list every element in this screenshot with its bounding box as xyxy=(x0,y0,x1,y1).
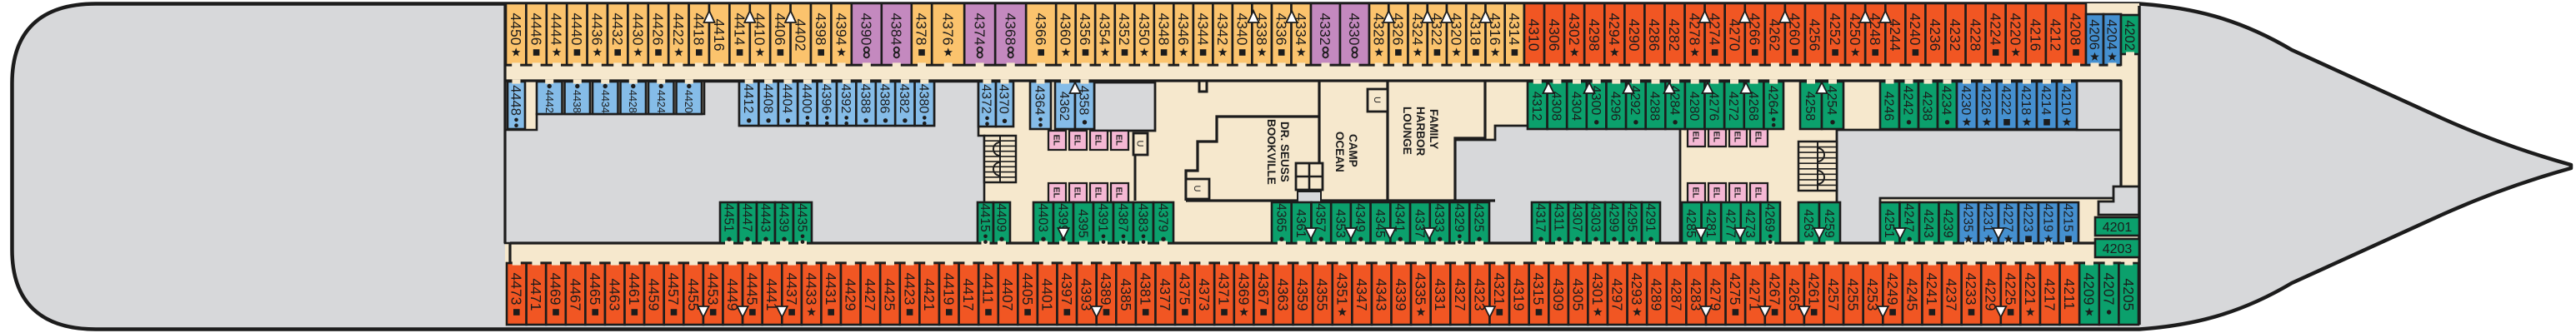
svg-text:4431: 4431 xyxy=(823,273,839,306)
svg-text:U: U xyxy=(1192,186,1202,192)
svg-text:4297: 4297 xyxy=(1609,279,1626,311)
svg-text:4343: 4343 xyxy=(1373,279,1390,311)
svg-text:4294: 4294 xyxy=(1606,13,1623,46)
svg-text:HARBOR: HARBOR xyxy=(1414,107,1427,156)
svg-text:4278: 4278 xyxy=(1686,13,1703,46)
svg-text:4425: 4425 xyxy=(882,279,898,311)
svg-text:4351: 4351 xyxy=(1333,273,1350,306)
svg-text:4318: 4318 xyxy=(1468,13,1484,46)
svg-text:4258: 4258 xyxy=(1803,92,1817,122)
svg-text:4304: 4304 xyxy=(1568,92,1583,122)
svg-text:4240: 4240 xyxy=(1907,13,1923,46)
svg-text:4262: 4262 xyxy=(1767,19,1783,52)
svg-text:4419: 4419 xyxy=(941,273,958,306)
svg-text:4344: 4344 xyxy=(1194,13,1211,46)
svg-text:4437: 4437 xyxy=(783,273,800,306)
svg-text:4450: 4450 xyxy=(508,13,524,46)
svg-text:4465: 4465 xyxy=(587,273,603,306)
svg-text:CAMP: CAMP xyxy=(1347,134,1359,167)
svg-text:4385: 4385 xyxy=(1118,279,1134,311)
svg-text:BOOKVILLE: BOOKVILLE xyxy=(1265,119,1278,185)
svg-text:4373: 4373 xyxy=(1196,279,1213,311)
svg-text:4301: 4301 xyxy=(1589,273,1606,306)
svg-text:EL: EL xyxy=(1052,187,1062,199)
svg-text:4354: 4354 xyxy=(1097,13,1113,46)
svg-text:4368: 4368 xyxy=(1002,13,1018,46)
svg-text:4374: 4374 xyxy=(971,13,988,46)
svg-text:FAMILY: FAMILY xyxy=(1428,109,1440,149)
svg-text:4397: 4397 xyxy=(1058,273,1075,306)
svg-text:4438: 4438 xyxy=(571,90,583,113)
svg-text:4332: 4332 xyxy=(1317,13,1333,46)
svg-text:4293: 4293 xyxy=(1628,273,1645,306)
svg-text:EL: EL xyxy=(1093,135,1103,147)
svg-text:EL: EL xyxy=(1691,132,1701,143)
svg-text:4222: 4222 xyxy=(1998,86,2013,116)
svg-text:4392: 4392 xyxy=(838,84,853,114)
svg-text:4366: 4366 xyxy=(1033,13,1049,46)
svg-text:4348: 4348 xyxy=(1155,13,1172,46)
svg-text:4457: 4457 xyxy=(665,273,682,306)
svg-text:4396: 4396 xyxy=(819,84,833,114)
svg-text:4356: 4356 xyxy=(1077,13,1093,46)
svg-text:EL: EL xyxy=(1712,187,1722,199)
svg-text:4362: 4362 xyxy=(1057,92,1071,122)
svg-text:4317: 4317 xyxy=(1533,203,1547,231)
svg-text:4395: 4395 xyxy=(1075,209,1089,237)
svg-text:4299: 4299 xyxy=(1606,203,1620,231)
svg-text:4256: 4256 xyxy=(1807,19,1823,52)
svg-text:4473: 4473 xyxy=(508,273,525,306)
svg-text:4288: 4288 xyxy=(1648,92,1662,122)
svg-text:4226: 4226 xyxy=(1978,86,1993,116)
svg-text:4223: 4223 xyxy=(2020,203,2034,231)
svg-text:4276: 4276 xyxy=(1707,92,1721,122)
svg-text:4277: 4277 xyxy=(1723,209,1737,237)
svg-text:EL: EL xyxy=(1712,132,1722,143)
svg-text:4440: 4440 xyxy=(568,13,585,46)
svg-text:4447: 4447 xyxy=(739,203,753,231)
svg-text:4291: 4291 xyxy=(1643,203,1657,231)
svg-text:EL: EL xyxy=(1733,132,1743,143)
svg-text:U: U xyxy=(1372,97,1382,103)
svg-text:4287: 4287 xyxy=(1668,279,1684,311)
svg-text:4459: 4459 xyxy=(646,279,663,311)
svg-text:4315: 4315 xyxy=(1530,273,1547,306)
svg-text:4439: 4439 xyxy=(776,203,790,231)
svg-text:4388: 4388 xyxy=(858,84,872,114)
svg-text:4409: 4409 xyxy=(993,203,1008,231)
svg-text:4381: 4381 xyxy=(1137,273,1153,306)
svg-text:4461: 4461 xyxy=(626,273,643,306)
svg-text:4261: 4261 xyxy=(1805,273,1822,306)
svg-text:4471: 4471 xyxy=(528,279,544,311)
svg-text:4290: 4290 xyxy=(1626,19,1643,52)
svg-text:4434: 4434 xyxy=(599,90,611,113)
svg-text:4435: 4435 xyxy=(794,203,808,231)
svg-text:4286: 4286 xyxy=(1646,19,1663,52)
svg-text:4204: 4204 xyxy=(2104,19,2119,50)
svg-text:4235: 4235 xyxy=(1960,203,1974,231)
svg-text:4391: 4391 xyxy=(1095,203,1109,231)
svg-text:4398: 4398 xyxy=(813,13,829,46)
svg-text:4209: 4209 xyxy=(2081,273,2098,306)
svg-text:4401: 4401 xyxy=(1038,279,1055,311)
svg-text:4232: 4232 xyxy=(1947,19,1963,52)
svg-text:EL: EL xyxy=(1691,187,1701,199)
svg-text:4367: 4367 xyxy=(1255,273,1272,306)
svg-text:4432: 4432 xyxy=(609,13,626,46)
svg-text:EL: EL xyxy=(1114,135,1124,147)
svg-text:4305: 4305 xyxy=(1569,279,1586,311)
svg-text:4296: 4296 xyxy=(1608,92,1623,122)
svg-text:4417: 4417 xyxy=(960,279,977,311)
svg-text:4270: 4270 xyxy=(1727,19,1743,52)
svg-text:4251: 4251 xyxy=(1882,209,1896,237)
svg-text:4289: 4289 xyxy=(1648,279,1665,311)
svg-text:4377: 4377 xyxy=(1157,279,1173,311)
svg-text:4446: 4446 xyxy=(528,13,544,46)
svg-text:4442: 4442 xyxy=(543,90,555,113)
svg-text:4324: 4324 xyxy=(1409,13,1426,46)
svg-text:4298: 4298 xyxy=(1586,19,1603,52)
svg-text:OCEAN: OCEAN xyxy=(1333,132,1346,172)
svg-text:4360: 4360 xyxy=(1058,13,1074,46)
svg-text:4444: 4444 xyxy=(548,13,565,46)
svg-text:4389: 4389 xyxy=(1098,273,1114,306)
svg-text:4210: 4210 xyxy=(2058,86,2073,116)
svg-text:4410: 4410 xyxy=(752,13,768,46)
svg-text:4214: 4214 xyxy=(2038,86,2053,116)
svg-text:4280: 4280 xyxy=(1687,92,1701,122)
svg-text:4285: 4285 xyxy=(1683,209,1698,237)
svg-text:4281: 4281 xyxy=(1703,209,1718,237)
svg-text:LOUNGE: LOUNGE xyxy=(1401,107,1413,155)
svg-text:4207: 4207 xyxy=(2100,273,2117,306)
svg-text:4312: 4312 xyxy=(1529,92,1543,122)
svg-text:4230: 4230 xyxy=(1958,86,1973,116)
svg-text:4363: 4363 xyxy=(1275,279,1292,311)
svg-text:4328: 4328 xyxy=(1370,13,1387,46)
svg-text:4319: 4319 xyxy=(1511,279,1528,311)
svg-text:4428: 4428 xyxy=(627,90,638,113)
svg-text:4217: 4217 xyxy=(2042,279,2058,311)
svg-text:4205: 4205 xyxy=(2120,279,2137,311)
svg-text:4342: 4342 xyxy=(1214,13,1231,46)
svg-text:4263: 4263 xyxy=(1801,209,1815,237)
svg-text:4327: 4327 xyxy=(1452,279,1468,311)
svg-text:4430: 4430 xyxy=(629,13,646,46)
svg-text:4252: 4252 xyxy=(1827,13,1843,46)
svg-text:4404: 4404 xyxy=(780,84,794,114)
svg-text:4365: 4365 xyxy=(1273,203,1288,231)
svg-text:4383: 4383 xyxy=(1135,203,1149,231)
svg-text:4302: 4302 xyxy=(1566,13,1583,46)
svg-text:4420: 4420 xyxy=(683,90,694,113)
svg-text:4228: 4228 xyxy=(1967,19,1983,52)
svg-text:4245: 4245 xyxy=(1903,279,1920,311)
svg-text:4241: 4241 xyxy=(1923,273,1940,306)
svg-text:4237: 4237 xyxy=(1943,279,1960,311)
svg-text:EL: EL xyxy=(1753,132,1763,143)
svg-text:4407: 4407 xyxy=(999,279,1016,311)
svg-text:4273: 4273 xyxy=(1743,209,1757,237)
svg-text:4206: 4206 xyxy=(2087,19,2102,50)
svg-text:4201: 4201 xyxy=(2103,221,2133,235)
svg-text:4445: 4445 xyxy=(744,273,761,306)
svg-text:4414: 4414 xyxy=(731,13,748,46)
svg-text:4203: 4203 xyxy=(2103,242,2133,256)
svg-text:4429: 4429 xyxy=(843,279,859,311)
svg-text:4221: 4221 xyxy=(2022,273,2038,306)
svg-text:4469: 4469 xyxy=(548,273,564,306)
svg-text:4448: 4448 xyxy=(508,85,523,116)
svg-text:4384: 4384 xyxy=(888,13,905,46)
svg-text:4269: 4269 xyxy=(1763,203,1777,231)
svg-text:4208: 4208 xyxy=(2068,13,2084,46)
svg-text:4254: 4254 xyxy=(1824,86,1838,116)
svg-text:4243: 4243 xyxy=(1921,209,1935,237)
svg-text:4268: 4268 xyxy=(1746,92,1760,122)
svg-text:EL: EL xyxy=(1052,135,1062,147)
svg-text:4257: 4257 xyxy=(1825,279,1842,311)
svg-text:EL: EL xyxy=(1114,187,1124,199)
svg-text:4339: 4339 xyxy=(1393,279,1409,311)
svg-text:4311: 4311 xyxy=(1551,203,1565,231)
svg-text:4405: 4405 xyxy=(1019,273,1036,306)
svg-text:4246: 4246 xyxy=(1882,92,1896,122)
svg-text:4436: 4436 xyxy=(589,13,606,46)
svg-text:4408: 4408 xyxy=(760,84,774,114)
svg-text:4239: 4239 xyxy=(1941,209,1955,237)
svg-text:4416: 4416 xyxy=(711,19,728,52)
svg-text:4330: 4330 xyxy=(1346,13,1363,46)
svg-text:4321: 4321 xyxy=(1491,273,1508,306)
svg-text:4422: 4422 xyxy=(670,13,687,46)
svg-text:4400: 4400 xyxy=(799,84,813,114)
svg-text:4378: 4378 xyxy=(913,13,930,46)
svg-text:4451: 4451 xyxy=(721,203,735,231)
svg-text:4412: 4412 xyxy=(741,84,755,114)
svg-text:4403: 4403 xyxy=(1035,203,1049,231)
svg-text:4345: 4345 xyxy=(1373,209,1387,237)
svg-text:4272: 4272 xyxy=(1726,92,1740,122)
svg-text:4336: 4336 xyxy=(1273,13,1289,46)
svg-text:4309: 4309 xyxy=(1550,279,1567,311)
svg-text:4350: 4350 xyxy=(1136,13,1153,46)
svg-text:4370: 4370 xyxy=(997,84,1011,114)
svg-text:4303: 4303 xyxy=(1588,203,1602,231)
svg-text:4352: 4352 xyxy=(1116,13,1133,46)
svg-text:4361: 4361 xyxy=(1293,209,1308,237)
svg-text:4443: 4443 xyxy=(758,203,772,231)
svg-text:4346: 4346 xyxy=(1175,13,1192,46)
svg-text:4418: 4418 xyxy=(691,13,708,46)
svg-text:U: U xyxy=(1135,141,1145,147)
svg-text:4331: 4331 xyxy=(1432,279,1448,311)
svg-text:4295: 4295 xyxy=(1624,203,1638,231)
svg-text:4355: 4355 xyxy=(1314,279,1331,311)
svg-text:4406: 4406 xyxy=(772,13,788,46)
svg-text:4306: 4306 xyxy=(1546,19,1563,52)
svg-text:4238: 4238 xyxy=(1920,92,1934,122)
svg-text:4372: 4372 xyxy=(979,84,993,114)
svg-text:4212: 4212 xyxy=(2048,19,2064,52)
svg-text:4225: 4225 xyxy=(2002,273,2018,306)
svg-text:4380: 4380 xyxy=(917,84,931,114)
svg-text:4359: 4359 xyxy=(1294,279,1311,311)
svg-text:4307: 4307 xyxy=(1569,203,1583,231)
svg-text:4347: 4347 xyxy=(1353,279,1370,311)
svg-text:4234: 4234 xyxy=(1939,86,1953,116)
svg-text:4433: 4433 xyxy=(803,273,819,306)
svg-text:4220: 4220 xyxy=(2007,13,2023,46)
svg-text:4216: 4216 xyxy=(2028,19,2044,52)
svg-text:4424: 4424 xyxy=(655,90,667,113)
svg-text:4242: 4242 xyxy=(1901,86,1915,116)
svg-text:4463: 4463 xyxy=(606,279,623,311)
svg-text:4371: 4371 xyxy=(1216,273,1233,306)
svg-text:EL: EL xyxy=(1733,187,1743,199)
svg-text:4386: 4386 xyxy=(878,84,892,114)
svg-text:4255: 4255 xyxy=(1845,279,1862,311)
svg-text:4390: 4390 xyxy=(858,13,875,46)
svg-text:4379: 4379 xyxy=(1155,203,1169,231)
svg-text:4423: 4423 xyxy=(901,273,918,306)
svg-text:DR. SEUSS: DR. SEUSS xyxy=(1278,122,1291,182)
svg-text:4224: 4224 xyxy=(1987,13,2003,46)
svg-text:EL: EL xyxy=(1753,187,1763,199)
svg-text:4353: 4353 xyxy=(1333,209,1348,237)
svg-text:4314: 4314 xyxy=(1506,13,1523,46)
svg-text:4250: 4250 xyxy=(1847,13,1863,46)
svg-text:4259: 4259 xyxy=(1822,209,1836,237)
svg-text:4219: 4219 xyxy=(2040,203,2054,231)
svg-text:4275: 4275 xyxy=(1727,273,1743,306)
svg-text:EL: EL xyxy=(1073,135,1083,147)
svg-text:4215: 4215 xyxy=(2060,203,2074,231)
svg-text:4402: 4402 xyxy=(793,19,809,52)
svg-text:4244: 4244 xyxy=(1887,19,1903,52)
svg-text:4337: 4337 xyxy=(1412,209,1426,237)
svg-text:4218: 4218 xyxy=(2018,86,2033,116)
svg-text:4308: 4308 xyxy=(1549,92,1563,122)
svg-text:4364: 4364 xyxy=(1033,86,1047,116)
svg-text:4340: 4340 xyxy=(1233,13,1250,46)
svg-text:4467: 4467 xyxy=(567,279,583,311)
svg-text:4426: 4426 xyxy=(650,13,667,46)
svg-text:4267: 4267 xyxy=(1766,273,1783,306)
svg-text:4335: 4335 xyxy=(1413,273,1429,306)
svg-text:4421: 4421 xyxy=(921,279,938,311)
svg-text:4369: 4369 xyxy=(1235,273,1252,306)
svg-text:4415: 4415 xyxy=(978,203,992,231)
svg-text:EL: EL xyxy=(1073,187,1083,199)
svg-text:4211: 4211 xyxy=(2061,279,2078,311)
svg-text:4202: 4202 xyxy=(2122,20,2137,51)
svg-text:4329: 4329 xyxy=(1452,203,1466,231)
svg-text:4387: 4387 xyxy=(1115,203,1129,231)
svg-text:4310: 4310 xyxy=(1526,19,1543,52)
svg-text:4375: 4375 xyxy=(1177,273,1193,306)
svg-text:4382: 4382 xyxy=(897,84,911,114)
svg-text:4394: 4394 xyxy=(833,13,849,46)
svg-text:4233: 4233 xyxy=(1963,273,1979,306)
svg-text:4453: 4453 xyxy=(704,273,721,306)
svg-text:EL: EL xyxy=(1093,187,1103,199)
svg-text:4427: 4427 xyxy=(862,279,878,311)
svg-text:4325: 4325 xyxy=(1472,203,1486,231)
svg-text:4282: 4282 xyxy=(1666,19,1683,52)
svg-text:4264: 4264 xyxy=(1765,86,1779,116)
svg-text:4249: 4249 xyxy=(1884,273,1901,306)
svg-text:4376: 4376 xyxy=(939,13,956,46)
svg-text:4236: 4236 xyxy=(1927,19,1943,52)
svg-text:4411: 4411 xyxy=(980,273,997,305)
